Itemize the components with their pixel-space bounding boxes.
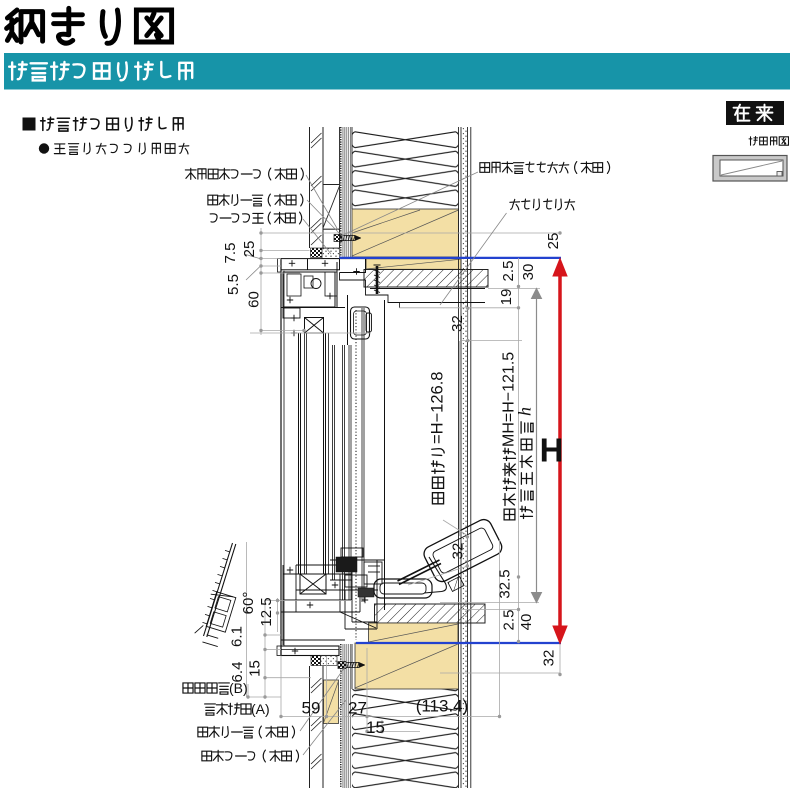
svg-text:(A): (A) (251, 701, 270, 717)
svg-text:6.4: 6.4 (229, 662, 246, 683)
svg-text:7.5: 7.5 (222, 243, 239, 264)
svg-text:15: 15 (366, 718, 385, 737)
svg-text:30: 30 (520, 264, 537, 281)
svg-text:32: 32 (449, 543, 466, 560)
svg-text:25: 25 (545, 233, 562, 250)
svg-text:MH=H−121.5: MH=H−121.5 (501, 352, 518, 447)
svg-text:32: 32 (449, 315, 466, 332)
svg-text:=H−126.8: =H−126.8 (428, 372, 446, 444)
svg-text:2.5: 2.5 (500, 261, 517, 282)
svg-text:15: 15 (246, 660, 263, 677)
svg-text:h: h (515, 407, 535, 416)
svg-text:19: 19 (498, 289, 515, 306)
svg-text:(113.4): (113.4) (416, 696, 469, 715)
svg-text:2.5: 2.5 (500, 610, 517, 631)
svg-text:32.5: 32.5 (496, 569, 513, 598)
svg-text:6.1: 6.1 (228, 626, 245, 647)
svg-text:40: 40 (518, 614, 535, 631)
svg-text:25: 25 (241, 241, 258, 258)
svg-text:59: 59 (302, 698, 321, 717)
svg-text:27: 27 (348, 698, 367, 717)
svg-text:32: 32 (540, 650, 557, 667)
svg-text:5.5: 5.5 (225, 274, 242, 295)
svg-text:60: 60 (245, 291, 262, 308)
svg-text:60°: 60° (240, 592, 257, 615)
svg-text:H: H (540, 432, 564, 469)
svg-text:12.5: 12.5 (258, 597, 275, 626)
